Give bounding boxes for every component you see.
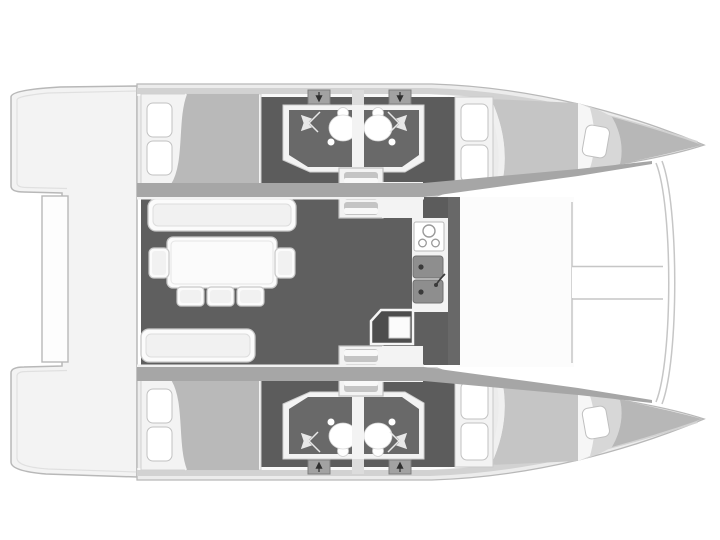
aft-beam-panel <box>42 196 68 362</box>
chair-right <box>275 248 295 278</box>
salon-bench-cushion <box>153 204 291 226</box>
salon <box>141 197 460 365</box>
stove <box>414 222 444 251</box>
catamaran-floor-plan <box>0 0 720 540</box>
dining-table <box>167 237 277 288</box>
gunwale-white-line <box>137 197 424 200</box>
galley-appliance <box>371 310 413 344</box>
chair-side-1 <box>177 287 204 306</box>
bathroom-divider <box>352 105 364 172</box>
pillow <box>147 141 172 175</box>
stair-step <box>344 202 378 215</box>
forward-bulkhead <box>448 197 460 365</box>
escape-hatch <box>389 90 411 104</box>
starboard-hull <box>137 346 704 480</box>
salon-sofa-cushion <box>146 334 250 357</box>
aft-cabin <box>141 94 261 184</box>
trampoline <box>572 161 675 404</box>
port-hull <box>137 84 704 218</box>
chair-side-2 <box>207 287 234 306</box>
floor-plan-canvas <box>0 0 720 540</box>
appliance-lid <box>389 317 410 338</box>
chair-left <box>149 248 169 278</box>
pillow <box>461 104 488 141</box>
pillow <box>147 103 172 137</box>
gunwale-band <box>137 183 424 197</box>
pillow <box>461 145 488 182</box>
galley-sinks <box>413 256 445 303</box>
bowsprit-band <box>572 267 662 298</box>
divider-deck-strip <box>352 90 364 105</box>
escape-hatch <box>308 90 330 104</box>
foredeck <box>458 197 574 367</box>
pillow <box>581 124 610 159</box>
chair-side-3 <box>237 287 264 306</box>
aft-platform <box>11 86 137 477</box>
